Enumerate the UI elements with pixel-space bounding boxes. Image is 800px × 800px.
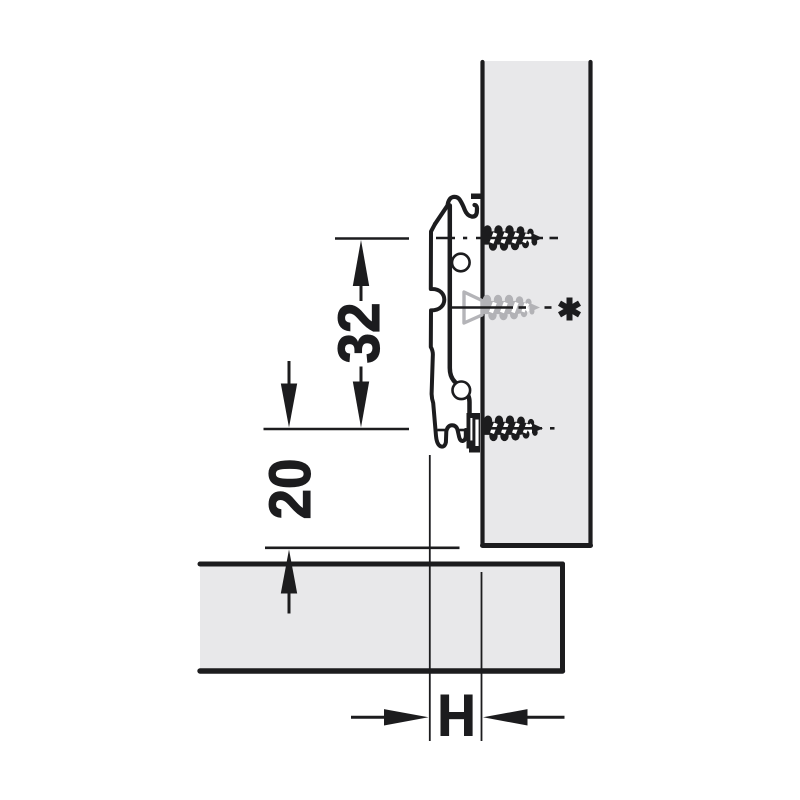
- svg-text:20: 20: [258, 459, 323, 520]
- svg-text:32: 32: [327, 303, 392, 364]
